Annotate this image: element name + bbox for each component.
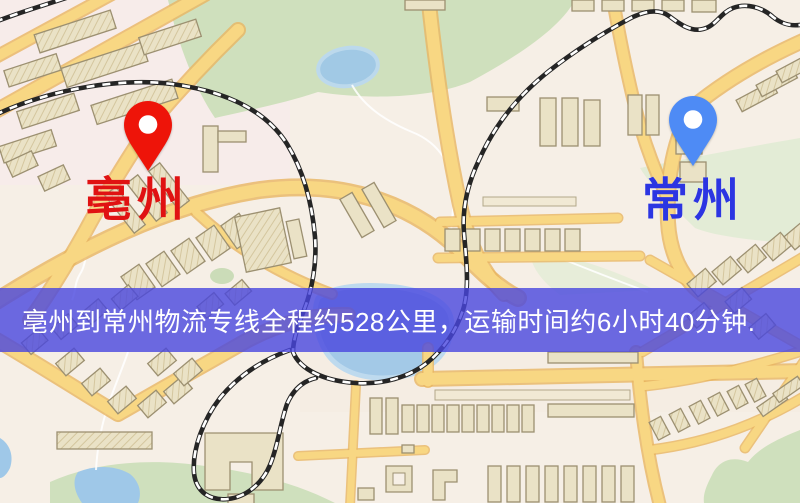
origin-city-label: 亳州 [85, 176, 189, 223]
map-pin-shape [669, 96, 717, 166]
route-map-screen: 亳州 常州 亳州到常州物流专线全程约528公里，运输时间约6小时40分钟. [0, 0, 800, 503]
route-info-text: 亳州到常州物流专线全程约528公里，运输时间约6小时40分钟. [0, 302, 755, 339]
map-canvas [0, 0, 800, 503]
origin-pin-icon[interactable] [124, 101, 172, 173]
map-pin-shape [124, 101, 172, 171]
destination-city-label: 常州 [642, 177, 744, 223]
destination-pin-icon[interactable] [669, 96, 717, 168]
route-info-banner: 亳州到常州物流专线全程约528公里，运输时间约6小时40分钟. [0, 288, 800, 352]
